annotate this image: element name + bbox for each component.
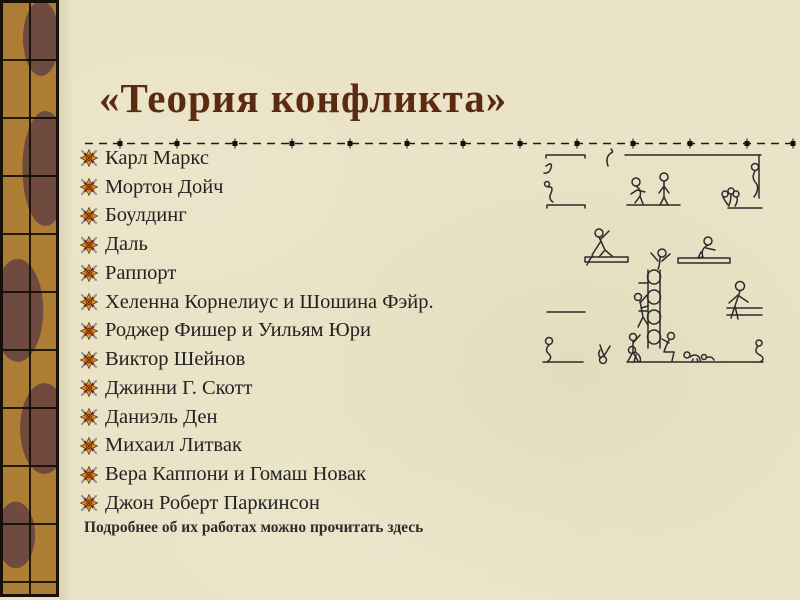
stick-figures-illustration — [535, 145, 797, 405]
list-item: Роджер Фишер и Уильям Юри — [80, 317, 434, 346]
list-item: Вера Каппони и Гомаш Новак — [80, 460, 434, 489]
compass-star-bullet-icon — [80, 408, 98, 426]
read-more-link[interactable]: Подробнее об их работах можно прочитать … — [84, 519, 423, 537]
mosaic-sidebar-decoration — [0, 0, 59, 597]
list-item-label: Мортон Дойч — [105, 176, 224, 199]
compass-star-bullet-icon — [80, 437, 98, 455]
list-item: Даль — [80, 230, 434, 259]
list-item-label: Боулдинг — [105, 204, 187, 227]
list-item: Михаил Литвак — [80, 432, 434, 461]
list-item-label: Хеленна Корнелиус и Шошина Фэйр. — [105, 291, 434, 314]
theorists-list: Карл Маркс Мортон Дойч Боулдинг Даль Рап… — [80, 144, 434, 518]
compass-star-bullet-icon — [80, 379, 98, 397]
list-item-label: Вера Каппони и Гомаш Новак — [105, 463, 366, 486]
list-item: Джинни Г. Скотт — [80, 374, 434, 403]
list-item: Карл Маркс — [80, 144, 434, 173]
sidebar-shadow — [59, 0, 77, 600]
list-item-label: Джон Роберт Паркинсон — [105, 492, 320, 515]
compass-star-bullet-icon — [80, 322, 98, 340]
list-item: Раппорт — [80, 259, 434, 288]
list-item: Боулдинг — [80, 202, 434, 231]
compass-star-bullet-icon — [80, 149, 98, 167]
page-title: «Теория конфликта» — [99, 74, 507, 122]
list-item-label: Джинни Г. Скотт — [105, 377, 252, 400]
list-item-label: Виктор Шейнов — [105, 348, 245, 371]
list-item-label: Даль — [105, 233, 148, 256]
list-item: Виктор Шейнов — [80, 345, 434, 374]
list-item-label: Роджер Фишер и Уильям Юри — [105, 319, 371, 342]
compass-star-bullet-icon — [80, 264, 98, 282]
compass-star-bullet-icon — [80, 351, 98, 369]
list-item: Даниэль Ден — [80, 403, 434, 432]
compass-star-bullet-icon — [80, 293, 98, 311]
compass-star-bullet-icon — [80, 466, 98, 484]
list-item-label: Карл Маркс — [105, 147, 209, 170]
compass-star-bullet-icon — [80, 494, 98, 512]
list-item: Джон Роберт Паркинсон — [80, 489, 434, 518]
list-item: Мортон Дойч — [80, 173, 434, 202]
compass-star-bullet-icon — [80, 207, 98, 225]
compass-star-bullet-icon — [80, 178, 98, 196]
list-item-label: Даниэль Ден — [105, 406, 217, 429]
presentation-slide: «Теория конфликта» Карл Маркс Мортон Дой… — [0, 0, 800, 600]
list-item: Хеленна Корнелиус и Шошина Фэйр. — [80, 288, 434, 317]
compass-star-bullet-icon — [80, 236, 98, 254]
list-item-label: Михаил Литвак — [105, 434, 242, 457]
list-item-label: Раппорт — [105, 262, 176, 285]
